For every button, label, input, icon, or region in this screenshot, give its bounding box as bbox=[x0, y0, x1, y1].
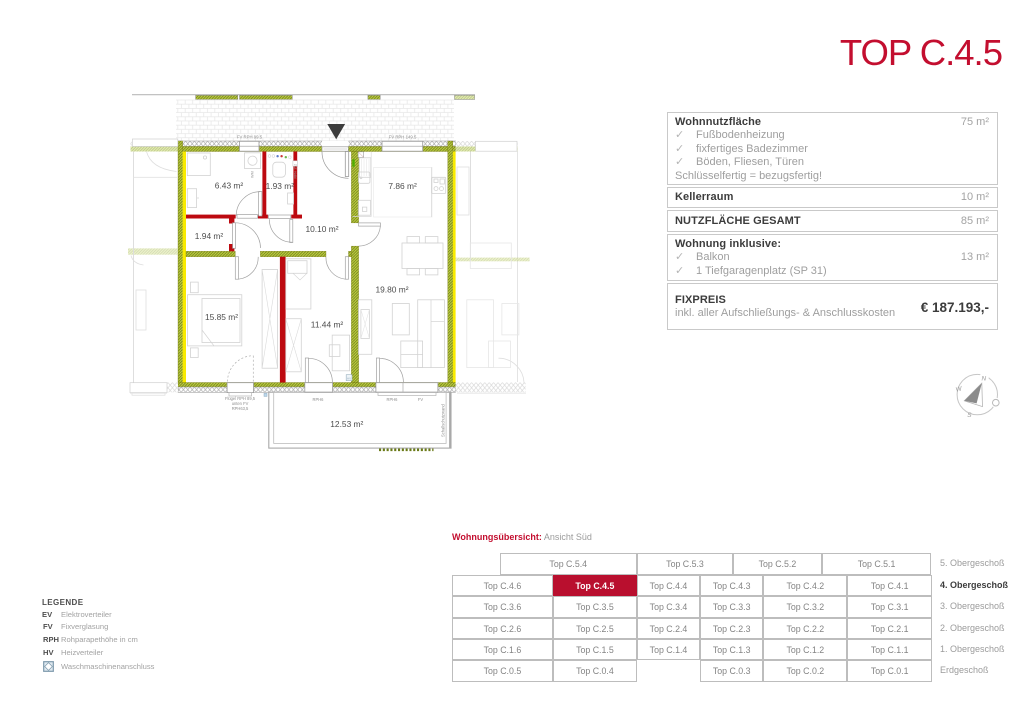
svg-text:RPH6: RPH6 bbox=[387, 397, 399, 402]
svg-text:FV RPH 149.5: FV RPH 149.5 bbox=[389, 134, 417, 139]
svg-text:WM: WM bbox=[251, 171, 255, 178]
svg-text:7.86 m²: 7.86 m² bbox=[388, 181, 417, 191]
svg-text:1.93 m²: 1.93 m² bbox=[266, 181, 295, 191]
svg-text:W: W bbox=[955, 385, 963, 393]
svg-text:FV RPH 99.5: FV RPH 99.5 bbox=[237, 134, 263, 139]
svg-text:1.94 m²: 1.94 m² bbox=[195, 231, 224, 241]
svg-text:FV: FV bbox=[418, 397, 424, 402]
svg-text:19.80 m²: 19.80 m² bbox=[375, 285, 408, 295]
svg-text:6.43 m²: 6.43 m² bbox=[215, 181, 244, 191]
svg-text:Schallschutzwand: Schallschutzwand bbox=[441, 404, 446, 437]
svg-text:HV: HV bbox=[347, 377, 351, 381]
svg-text:S: S bbox=[967, 412, 972, 419]
svg-text:N: N bbox=[982, 376, 987, 383]
svg-text:12.53 m²: 12.53 m² bbox=[330, 419, 363, 429]
svg-text:RPH 152: RPH 152 bbox=[294, 164, 298, 179]
svg-text:RPH63,5: RPH63,5 bbox=[232, 406, 249, 411]
svg-text:15.85 m²: 15.85 m² bbox=[205, 312, 238, 322]
svg-text:10.10 m²: 10.10 m² bbox=[305, 224, 338, 234]
svg-text:11.44 m²: 11.44 m² bbox=[311, 320, 344, 330]
svg-text:RPH6: RPH6 bbox=[313, 397, 325, 402]
